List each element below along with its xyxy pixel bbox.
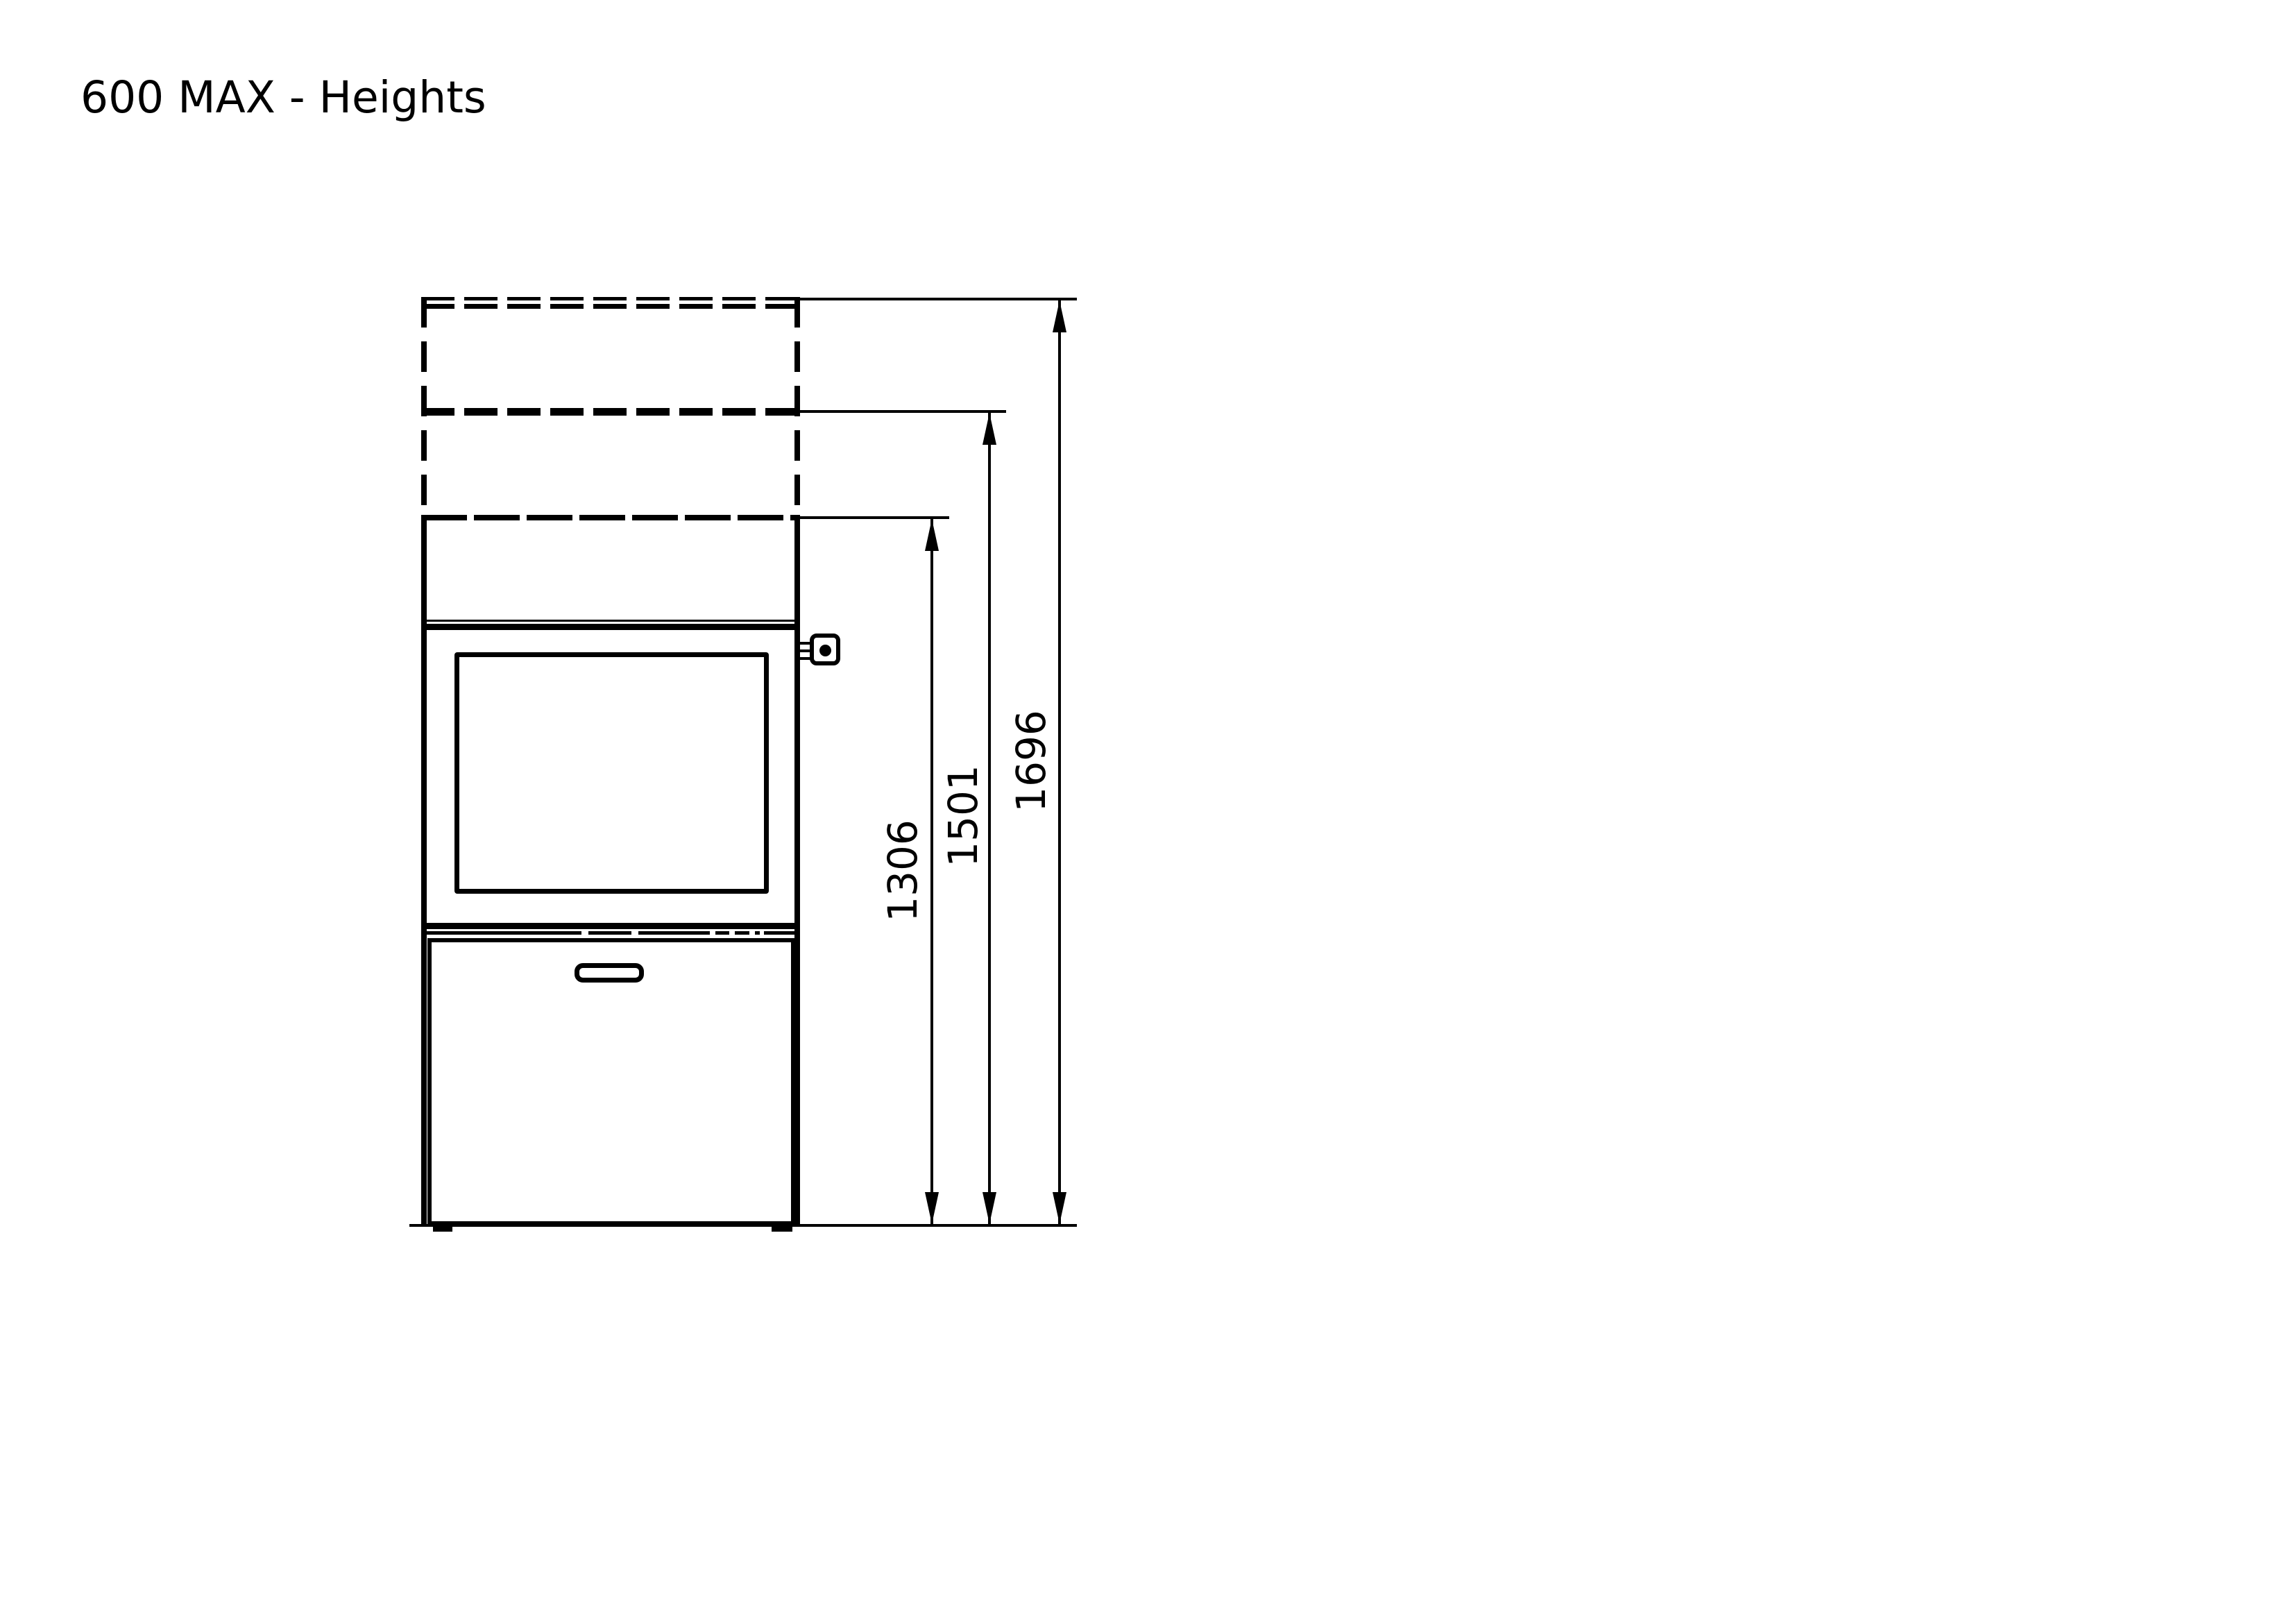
door-bottom-bar	[421, 923, 800, 929]
oven-door-window	[454, 652, 769, 894]
extension-middle-shelf-line	[421, 408, 800, 416]
extension-line-1696	[799, 298, 1077, 300]
dimension-label-1696: 1696	[1007, 710, 1055, 813]
extension-top-edge-inner-line	[421, 304, 800, 309]
dimension-line-1306	[930, 518, 933, 1225]
vent-gap	[729, 931, 735, 935]
floor-line	[409, 1224, 1077, 1227]
page-title: 600 MAX - Heights	[80, 72, 486, 123]
arrowhead-up-1306	[925, 519, 939, 551]
vent-gap	[631, 931, 638, 935]
drawer-handle	[575, 963, 644, 983]
dimension-label-1306: 1306	[879, 819, 926, 922]
vent-gap	[581, 931, 588, 935]
arrowhead-down-1696	[1053, 1192, 1066, 1224]
vent-gap	[710, 931, 715, 935]
dimension-label-1501: 1501	[939, 765, 987, 867]
arrowhead-down-1306	[925, 1192, 939, 1224]
housing-top-dashed-line	[421, 515, 800, 520]
door-top-thin-line	[421, 620, 800, 622]
drawing-canvas: 600 MAX - Heights 1306 1501	[0, 0, 2296, 1623]
arrowhead-up-1696	[1053, 300, 1066, 332]
right-foot	[772, 1225, 792, 1232]
vent-gap	[749, 931, 755, 935]
door-top-bar	[421, 624, 800, 630]
extension-top-edge-outer-line	[421, 297, 800, 300]
dimension-line-1501	[988, 411, 991, 1225]
extension-line-1501	[799, 410, 1006, 413]
dimension-line-1696	[1058, 299, 1061, 1225]
arrowhead-down-1501	[983, 1192, 996, 1224]
door-latch-dot	[819, 645, 831, 656]
vent-gap	[760, 931, 764, 935]
left-foot	[433, 1225, 452, 1232]
arrowhead-up-1501	[983, 413, 996, 445]
vent-line	[425, 931, 797, 935]
